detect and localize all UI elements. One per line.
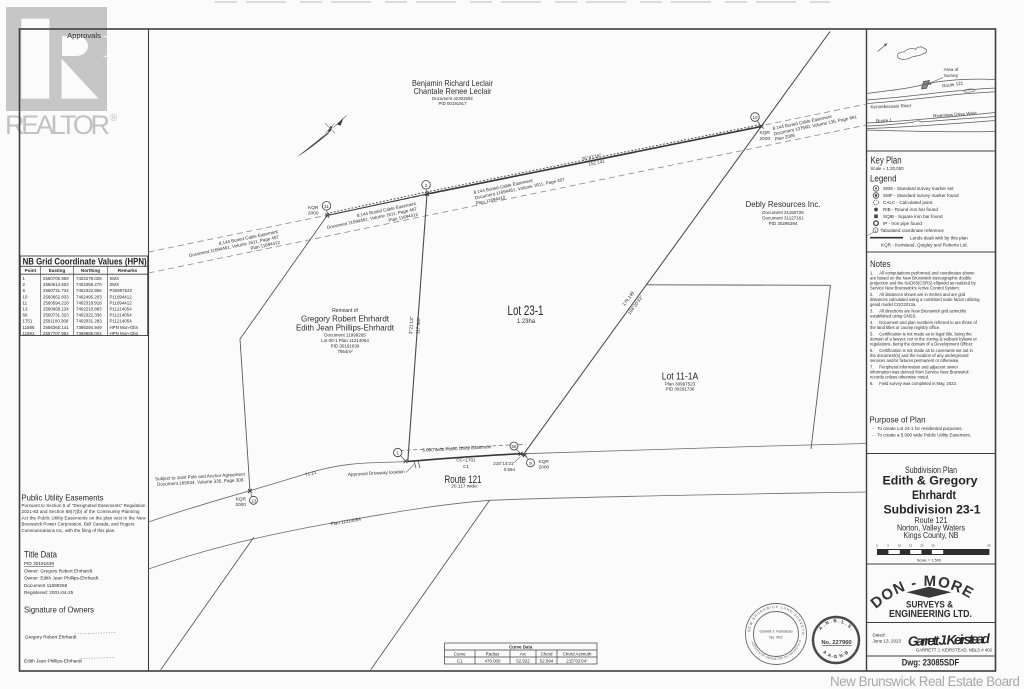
svg-text:KQR: KQR bbox=[760, 130, 771, 136]
svg-text:52.994: 52.994 bbox=[540, 658, 554, 663]
svg-text:No. 227960: No. 227960 bbox=[821, 640, 851, 646]
svg-text:7398294.949: 7398294.949 bbox=[76, 325, 102, 330]
svg-text:2560594.218: 2560594.218 bbox=[43, 300, 69, 305]
svg-text:Arc: Arc bbox=[520, 651, 527, 656]
svg-text:Document 11999265: Document 11999265 bbox=[24, 583, 68, 588]
svg-text:Area of: Area of bbox=[944, 67, 960, 72]
svg-text:GARRETT J. KEIRSTEAD, NBLS # 4: GARRETT J. KEIRSTEAD, NBLS # 402 bbox=[916, 648, 993, 653]
svg-text:services and/or fixtures perma: services and/or fixtures permanent or ot… bbox=[870, 358, 959, 363]
svg-text:KQR: KQR bbox=[539, 459, 550, 465]
svg-text:ENGINEERING LTD.: ENGINEERING LTD. bbox=[889, 609, 972, 620]
svg-text:25: 25 bbox=[931, 544, 935, 548]
svg-text:Edith & Gregory: Edith & Gregory bbox=[883, 474, 978, 488]
svg-text:Easting: Easting bbox=[49, 268, 66, 273]
svg-text:P11214054: P11214054 bbox=[110, 307, 133, 312]
svg-text:Northing: Northing bbox=[81, 268, 100, 273]
svg-text:P11214054: P11214054 bbox=[110, 319, 133, 324]
svg-text:2021-83 and Section 88(7)(b) o: 2021-83 and Section 88(7)(b) of the Comm… bbox=[22, 509, 141, 514]
svg-text:SQIB - Square iron bar found: SQIB - Square iron bar found bbox=[883, 214, 943, 219]
svg-text:A A-G N-B: A A-G N-B bbox=[822, 649, 850, 659]
svg-text:10: 10 bbox=[898, 544, 902, 548]
svg-text:Chord Azimuth: Chord Azimuth bbox=[563, 651, 592, 656]
svg-text:Curve: Curve bbox=[454, 651, 466, 656]
svg-text:PID 30291736: PID 30291736 bbox=[666, 387, 695, 392]
svg-text:Debly Resources Inc.: Debly Resources Inc. bbox=[746, 200, 821, 209]
svg-text:66: 66 bbox=[23, 313, 28, 318]
svg-text:20.117 wide: 20.117 wide bbox=[451, 484, 477, 490]
svg-text:0.564: 0.564 bbox=[504, 467, 516, 472]
svg-text:Chantale Renee Leclair: Chantale Renee Leclair bbox=[414, 87, 492, 96]
svg-text:5: 5 bbox=[887, 544, 889, 548]
svg-text:Garrett J. Keirstead: Garrett J. Keirstead bbox=[908, 631, 991, 649]
svg-text:SURVEYS &: SURVEYS & bbox=[906, 600, 953, 610]
svg-text:the land titles or county regi: the land titles or county registry offic… bbox=[870, 325, 940, 330]
svg-text:Act the Public Utility Easemen: Act the Public Utility Easements on the … bbox=[22, 515, 147, 520]
svg-text:Registered: 2001-04-25: Registered: 2001-04-25 bbox=[24, 590, 74, 595]
svg-text:52.922: 52.922 bbox=[516, 658, 530, 663]
svg-text:Route 121: Route 121 bbox=[942, 80, 964, 88]
svg-text:Garrett J. Keirstead: Garrett J. Keirstead bbox=[760, 630, 793, 634]
svg-text:11: 11 bbox=[23, 300, 28, 305]
svg-text:7402322.856: 7402322.856 bbox=[76, 288, 102, 293]
svg-text:Lot 23-1: Lot 23-1 bbox=[508, 303, 544, 318]
svg-text:No. 402: No. 402 bbox=[769, 636, 782, 640]
svg-text:geoid model CGG2013a.: geoid model CGG2013a. bbox=[870, 302, 916, 307]
svg-text:7402318.918: 7402318.918 bbox=[76, 300, 102, 305]
svg-text:Dated:: Dated: bbox=[873, 633, 886, 638]
svg-text:records unless otherwise noted: records unless otherwise noted. bbox=[870, 375, 929, 380]
svg-text:2560700.959: 2560700.959 bbox=[43, 276, 69, 281]
svg-text:2: 2 bbox=[425, 183, 428, 188]
svg-text:1: 1 bbox=[396, 451, 399, 456]
svg-text:2560731.734: 2560731.734 bbox=[43, 288, 69, 293]
svg-text:SMS: SMS bbox=[110, 276, 120, 281]
svg-text:®: ® bbox=[110, 113, 118, 124]
svg-text:SMF - Standard survey marker f: SMF - Standard survey marker found bbox=[883, 193, 959, 198]
svg-text:NB Grid Coordinate Values (HPN: NB Grid Coordinate Values (HPN) bbox=[23, 256, 147, 266]
svg-text:Approved Driveway location: Approved Driveway location bbox=[348, 469, 406, 477]
svg-text:Brunswick Power Corporation, B: Brunswick Power Corporation, Bell Canada… bbox=[22, 522, 136, 527]
svg-text:2561100.368: 2561100.368 bbox=[43, 319, 69, 324]
svg-text:regulations, being the domain: regulations, being the domain of a Devel… bbox=[870, 342, 973, 347]
svg-text:2000: 2000 bbox=[308, 211, 319, 217]
svg-text:REALTOR: REALTOR bbox=[5, 110, 110, 140]
svg-text:RIB - Round iron bar found: RIB - Round iron bar found bbox=[883, 207, 938, 212]
svg-text:HPN Mon-Obs: HPN Mon-Obs bbox=[110, 325, 139, 330]
svg-text:Kennebecasis River: Kennebecasis River bbox=[870, 103, 911, 109]
svg-text:2: 2 bbox=[23, 282, 26, 287]
svg-text:PID 30191639: PID 30191639 bbox=[331, 344, 360, 349]
svg-text:7402495.203: 7402495.203 bbox=[76, 294, 102, 299]
svg-text:Public Utility Easements: Public Utility Easements bbox=[22, 494, 104, 503]
svg-text:Document 11999265: Document 11999265 bbox=[324, 333, 366, 338]
svg-text:Purpose of Plan: Purpose of Plan bbox=[870, 416, 926, 425]
svg-text:Notes: Notes bbox=[870, 259, 891, 269]
svg-text:P11214054: P11214054 bbox=[110, 313, 133, 318]
svg-text:Dwg: 23085SDF: Dwg: 23085SDF bbox=[902, 656, 960, 667]
svg-text:PID 00191917: PID 00191917 bbox=[438, 101, 467, 106]
svg-text:Lot 00-1 Plan 11214054: Lot 00-1 Plan 11214054 bbox=[321, 338, 369, 343]
svg-text:Approvals: Approvals bbox=[67, 31, 101, 40]
svg-text:Ehrhardt: Ehrhardt bbox=[912, 488, 956, 502]
svg-text:Lands dealt with by this plan: Lands dealt with by this plan bbox=[910, 236, 968, 241]
svg-text:Plan 11214054: Plan 11214054 bbox=[330, 517, 361, 527]
svg-text:2560731.323: 2560731.323 bbox=[43, 313, 69, 318]
svg-text:Document 31150726: Document 31150726 bbox=[762, 210, 804, 215]
svg-text:2000: 2000 bbox=[235, 502, 246, 508]
svg-text:2557707.952: 2557707.952 bbox=[43, 331, 69, 336]
svg-text:Chord: Chord bbox=[541, 651, 554, 656]
svg-text:Edith Jean Phillips-Ehrhardt: Edith Jean Phillips-Ehrhardt bbox=[24, 659, 83, 664]
svg-text:KQR - Keirstead, Quigley and R: KQR - Keirstead, Quigley and Roberts Ltd… bbox=[881, 242, 968, 247]
svg-text:C1: C1 bbox=[463, 464, 469, 469]
svg-text:10: 10 bbox=[23, 294, 28, 299]
svg-text:66: 66 bbox=[511, 444, 517, 449]
svg-text:established using GNSS.: established using GNSS. bbox=[870, 314, 917, 319]
svg-text:PID 30191639: PID 30191639 bbox=[24, 561, 54, 566]
svg-text:1: 1 bbox=[875, 229, 877, 233]
svg-text:2556365.141: 2556365.141 bbox=[43, 325, 69, 330]
svg-text:13: 13 bbox=[23, 307, 28, 312]
svg-text:IP - Iron pipe found: IP - Iron pipe found bbox=[883, 221, 922, 226]
svg-text:11588: 11588 bbox=[23, 325, 35, 330]
svg-text:Pursuant to Section 5 of "Desi: Pursuant to Section 5 of "Designated Eas… bbox=[22, 503, 147, 508]
svg-text:P30997523: P30997523 bbox=[110, 288, 133, 293]
svg-text:7402322.336: 7402322.336 bbox=[76, 313, 102, 318]
svg-text:Kings County, NB: Kings County, NB bbox=[904, 531, 959, 540]
svg-text:11591: 11591 bbox=[23, 331, 35, 336]
svg-text:New Brunswick Real Estate Boar: New Brunswick Real Estate Board bbox=[830, 674, 1020, 689]
svg-text:Legend: Legend bbox=[870, 174, 897, 185]
svg-text:Point: Point bbox=[25, 268, 37, 273]
svg-text:9: 9 bbox=[529, 461, 532, 466]
svg-text:Riverview Drive West: Riverview Drive West bbox=[933, 110, 978, 118]
svg-text:HPN Mon-Obs: HPN Mon-Obs bbox=[110, 331, 139, 336]
svg-text:P11694412: P11694412 bbox=[110, 300, 133, 305]
svg-text:KQR: KQR bbox=[236, 497, 247, 503]
svg-text:Signature of Owners: Signature of Owners bbox=[24, 605, 94, 615]
svg-text:Title Data: Title Data bbox=[24, 550, 57, 560]
svg-text:Owner: Gregory Robert Ehrhardt: Owner: Gregory Robert Ehrhardt bbox=[24, 568, 93, 573]
svg-text:Gregory Robert Ehrhardt: Gregory Robert Ehrhardt bbox=[301, 315, 390, 324]
svg-text:0: 0 bbox=[876, 544, 878, 548]
svg-text:470.000: 470.000 bbox=[485, 658, 501, 663]
svg-text:Survey: Survey bbox=[944, 73, 959, 78]
svg-text:June 13, 2023: June 13, 2023 bbox=[873, 639, 902, 644]
svg-text:Gregory Robert Ehrhardt: Gregory Robert Ehrhardt bbox=[25, 635, 77, 640]
svg-text:215°02'04": 215°02'04" bbox=[566, 658, 588, 663]
svg-text:10: 10 bbox=[752, 115, 758, 120]
svg-text:20: 20 bbox=[920, 544, 924, 548]
svg-text:13: 13 bbox=[251, 498, 257, 503]
svg-text:Tabulated coordinate reference: Tabulated coordinate reference bbox=[881, 228, 945, 233]
svg-text:SMS - Standard survey marker s: SMS - Standard survey marker set bbox=[883, 186, 954, 191]
svg-text:1751: 1751 bbox=[23, 319, 33, 324]
svg-text:3°21'13": 3°21'13" bbox=[408, 316, 414, 334]
svg-text:2000: 2000 bbox=[760, 136, 771, 142]
svg-text:71.21: 71.21 bbox=[304, 470, 317, 478]
svg-text:Key Plan: Key Plan bbox=[871, 156, 902, 167]
svg-text:P11694412: P11694412 bbox=[110, 294, 133, 299]
svg-text:15: 15 bbox=[909, 544, 913, 548]
svg-text:7402279.026: 7402279.026 bbox=[76, 276, 102, 281]
svg-text:CALC - Calculated point: CALC - Calculated point bbox=[883, 200, 933, 205]
svg-text:11: 11 bbox=[324, 204, 329, 209]
svg-text:7398986.004: 7398986.004 bbox=[76, 331, 102, 336]
svg-text:8. Field survey was comple: 8. Field survey was completed in May, 20… bbox=[870, 381, 957, 386]
svg-text:Scale = 1:500: Scale = 1:500 bbox=[917, 557, 942, 562]
svg-text:117.967: 117.967 bbox=[415, 317, 421, 334]
svg-text:Document 31127161: Document 31127161 bbox=[762, 216, 804, 221]
svg-text:CC=1701: CC=1701 bbox=[456, 458, 476, 463]
svg-text:Edith Jean Phillips-Ehrhardt: Edith Jean Phillips-Ehrhardt bbox=[296, 324, 395, 333]
svg-text:Route 1: Route 1 bbox=[876, 118, 893, 124]
svg-text:2560614.502: 2560614.502 bbox=[43, 282, 69, 287]
svg-text:1.23ha: 1.23ha bbox=[517, 319, 536, 325]
svg-text:7402031.283: 7402031.283 bbox=[76, 319, 102, 324]
svg-text:2560668.134: 2560668.134 bbox=[43, 307, 69, 312]
svg-text:2000: 2000 bbox=[539, 465, 550, 471]
svg-text:PID 30296394: PID 30296394 bbox=[769, 221, 798, 226]
svg-text:Radius: Radius bbox=[486, 651, 500, 656]
svg-text:2560662.833: 2560662.833 bbox=[43, 294, 69, 299]
svg-text:Service New Brunswick's Active: Service New Brunswick's Active Control S… bbox=[870, 286, 960, 291]
svg-text:Subdivision 23-1: Subdivision 23-1 bbox=[884, 502, 981, 516]
svg-text:7954m²: 7954m² bbox=[337, 349, 353, 354]
svg-text:1: 1 bbox=[23, 276, 26, 281]
svg-text:SMS: SMS bbox=[110, 282, 120, 287]
svg-text:5.000 wide Public Utility Ease: 5.000 wide Public Utility Easement bbox=[422, 444, 492, 453]
svg-text:Communications Inc, with the f: Communications Inc, with the filing of t… bbox=[22, 528, 116, 533]
svg-text:- To create Lot 23-1 for res: - To create Lot 23-1 for residential pur… bbox=[872, 426, 963, 431]
svg-text:KQR: KQR bbox=[308, 205, 319, 211]
svg-text:50: 50 bbox=[987, 544, 991, 548]
svg-text:7402359.270: 7402359.270 bbox=[76, 282, 102, 287]
svg-text:Remnant of: Remnant of bbox=[332, 308, 358, 314]
svg-text:Remarks: Remarks bbox=[118, 268, 138, 273]
svg-text:Owner: Edith Jean Phillips-Ehr: Owner: Edith Jean Phillips-Ehrhardt bbox=[24, 576, 99, 581]
svg-text:Curve Data: Curve Data bbox=[509, 644, 533, 649]
svg-text:7402210.883: 7402210.883 bbox=[76, 307, 102, 312]
svg-text:6: 6 bbox=[23, 288, 26, 293]
svg-text:- To create a 5.000 wide Pub: - To create a 5.000 wide Public Utility … bbox=[872, 433, 971, 438]
svg-text:Scale = 1:20,000: Scale = 1:20,000 bbox=[871, 166, 905, 171]
svg-text:218°14'31": 218°14'31" bbox=[493, 461, 515, 466]
svg-text:C1: C1 bbox=[457, 658, 463, 663]
